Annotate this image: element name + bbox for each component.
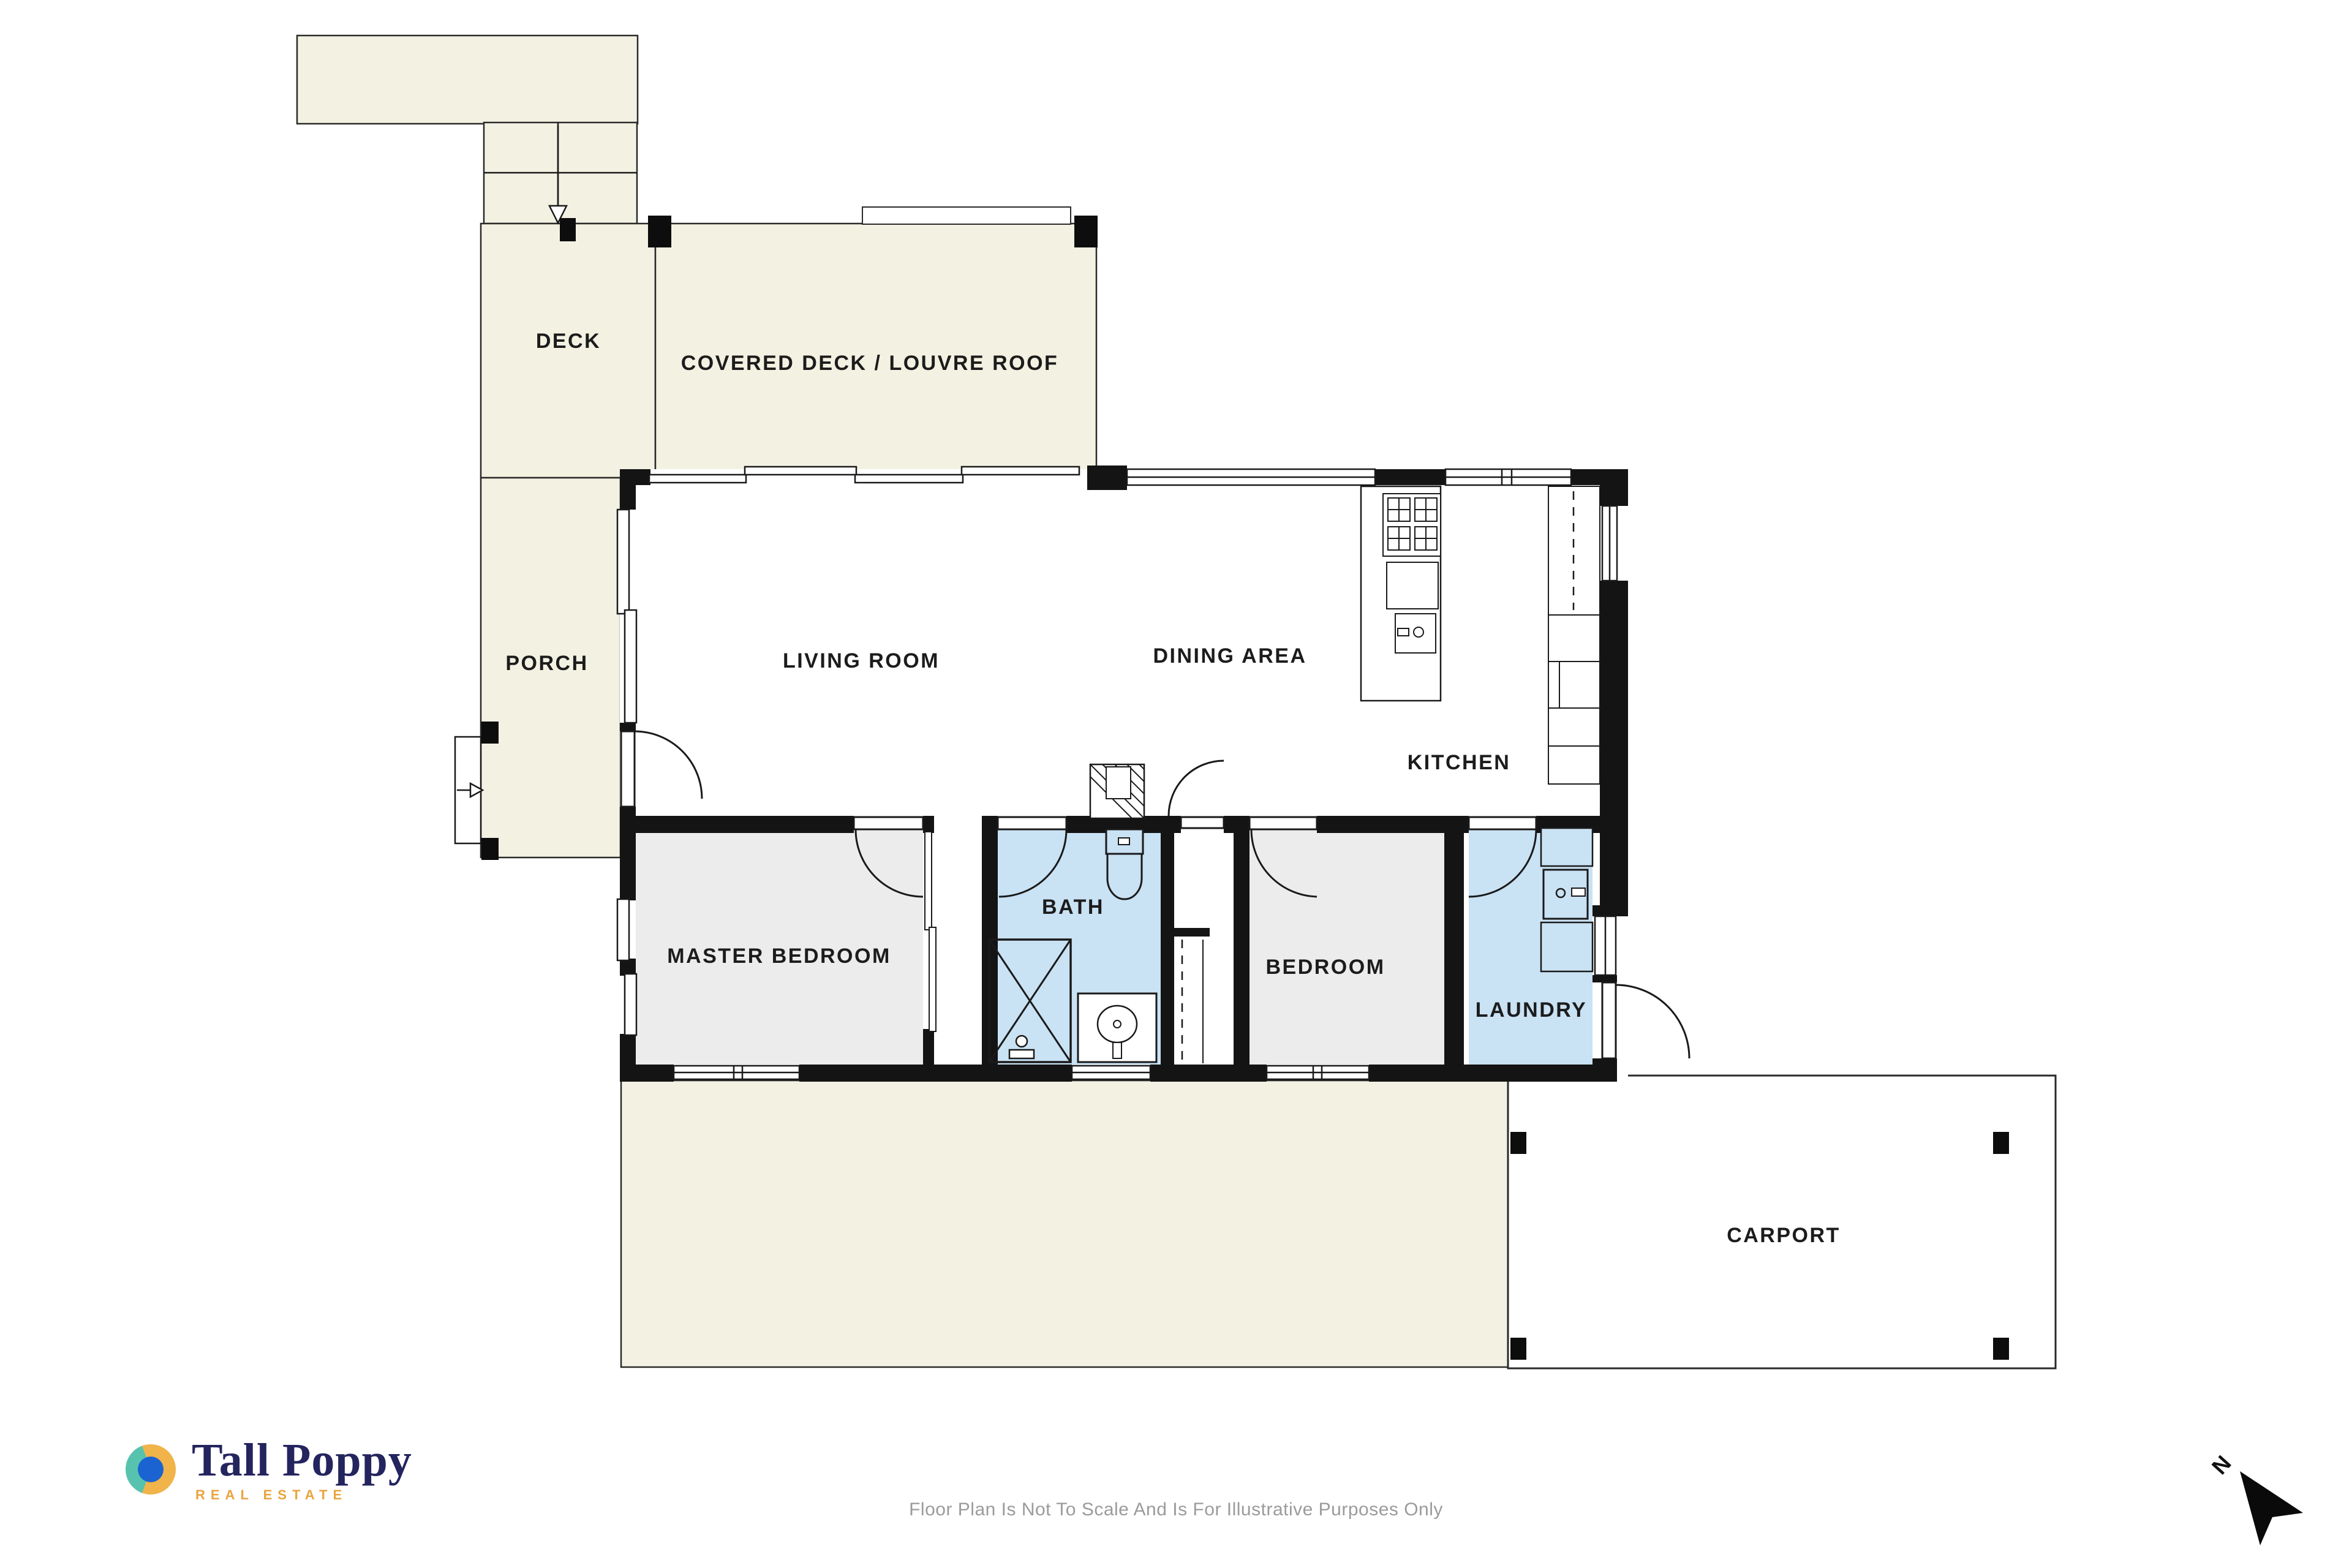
window-master-left-1 [617, 899, 629, 960]
covered-deck-area [655, 224, 1096, 478]
carport-post-sw [1510, 1338, 1526, 1360]
carport-area [1508, 1076, 2056, 1368]
label-laundry: LAUNDRY [1476, 998, 1587, 1022]
north-arrow: N [2207, 1450, 2303, 1545]
cabinet-3 [1548, 746, 1600, 784]
label-kitchen: KITCHEN [1408, 751, 1511, 774]
covered-deck-post-nw [648, 216, 671, 247]
floor-plan-drawing: DECK COVERED DECK / LOUVRE ROOF PORCH LI… [0, 0, 2352, 1568]
label-master-bedroom: MASTER BEDROOM [667, 944, 891, 968]
label-living-room: LIVING ROOM [783, 649, 940, 673]
pantry [1548, 486, 1600, 615]
label-covered-deck: COVERED DECK / LOUVRE ROOF [681, 352, 1059, 375]
porch-steps [455, 737, 483, 843]
brand-name: Tall Poppy [192, 1436, 412, 1485]
master-door-leaf [854, 817, 923, 829]
carport-post-ne [1993, 1132, 2009, 1154]
toilet-bowl [1107, 854, 1142, 899]
carport-post-nw [1510, 1132, 1526, 1154]
laundry-cabinet-top [1541, 828, 1593, 866]
label-dining-area: DINING AREA [1153, 644, 1306, 668]
label-bath: BATH [1042, 895, 1104, 919]
porch-post-2 [481, 838, 499, 860]
carport-post-se [1993, 1338, 2009, 1360]
laundry-bench [1541, 922, 1593, 971]
hall-door-leaf [1181, 817, 1224, 828]
bath-door-leaf [998, 817, 1066, 829]
tall-poppy-logo-icon [126, 1444, 176, 1494]
window-living-left-2 [625, 610, 636, 723]
covered-deck-roof-edge [862, 207, 1071, 224]
laundry-door-leaf [1469, 817, 1536, 829]
window-top-2 [745, 467, 856, 475]
fridge-space [1548, 615, 1600, 661]
window-master-left-2 [625, 974, 636, 1035]
label-deck: DECK [536, 330, 601, 353]
laundry-exterior-door-leaf [1602, 982, 1616, 1058]
cabinet-1 [1548, 661, 1600, 708]
floor-plan-page: DECK COVERED DECK / LOUVRE ROOF PORCH LI… [0, 0, 2352, 1568]
window-top-3 [855, 475, 963, 483]
laundry-fixtures [1541, 828, 1593, 971]
label-carport: CARPORT [1727, 1224, 1841, 1247]
covered-deck-post-ne [1074, 216, 1098, 247]
window-top-4 [962, 467, 1079, 475]
label-bedroom: BEDROOM [1265, 956, 1385, 979]
deck-post [560, 218, 576, 241]
disclaimer-text: Floor Plan Is Not To Scale And Is For Il… [0, 1499, 2352, 1520]
logo-center-dot [138, 1457, 164, 1482]
kitchen-counter-unit [1387, 562, 1438, 609]
patio-area [621, 1080, 1508, 1367]
window-living-left-1 [617, 510, 629, 614]
bedroom-floor [1249, 828, 1444, 1065]
tall-poppy-logo: Tall Poppy REAL ESTATE [126, 1436, 412, 1503]
entry-door-leaf [621, 731, 635, 807]
north-label: N [2207, 1450, 2236, 1479]
cabinet-2 [1548, 708, 1600, 746]
bedroom-door-leaf [1249, 817, 1317, 829]
label-porch: PORCH [505, 652, 588, 675]
upper-deck-area [297, 36, 638, 124]
window-top-1 [649, 475, 746, 483]
porch-post-1 [481, 722, 499, 744]
